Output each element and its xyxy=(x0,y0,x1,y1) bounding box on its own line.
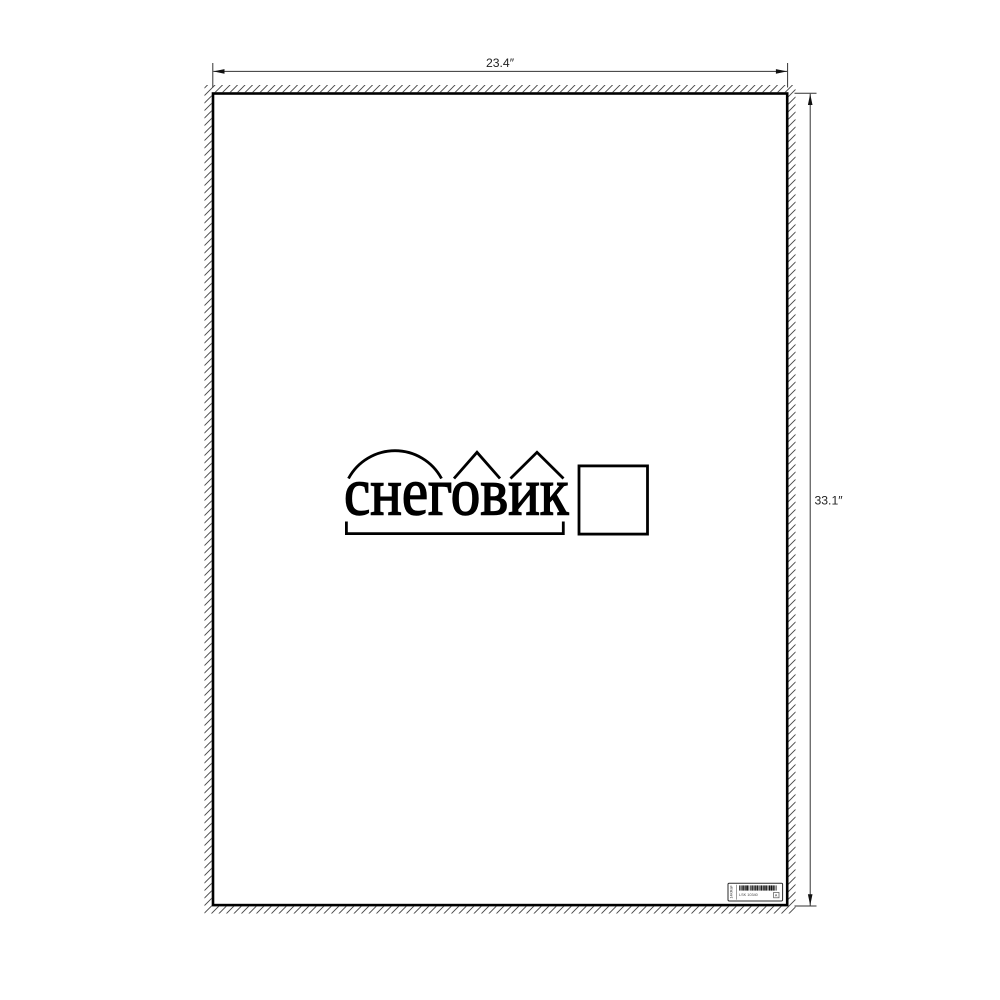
svg-text:33.1″: 33.1″ xyxy=(815,494,844,508)
svg-text:LSK 10340: LSK 10340 xyxy=(739,893,758,897)
svg-text:23.4″: 23.4″ xyxy=(486,56,515,70)
svg-text:снеговик: снеговик xyxy=(344,454,569,530)
svg-text:14KRaF: 14KRaF xyxy=(730,885,734,899)
